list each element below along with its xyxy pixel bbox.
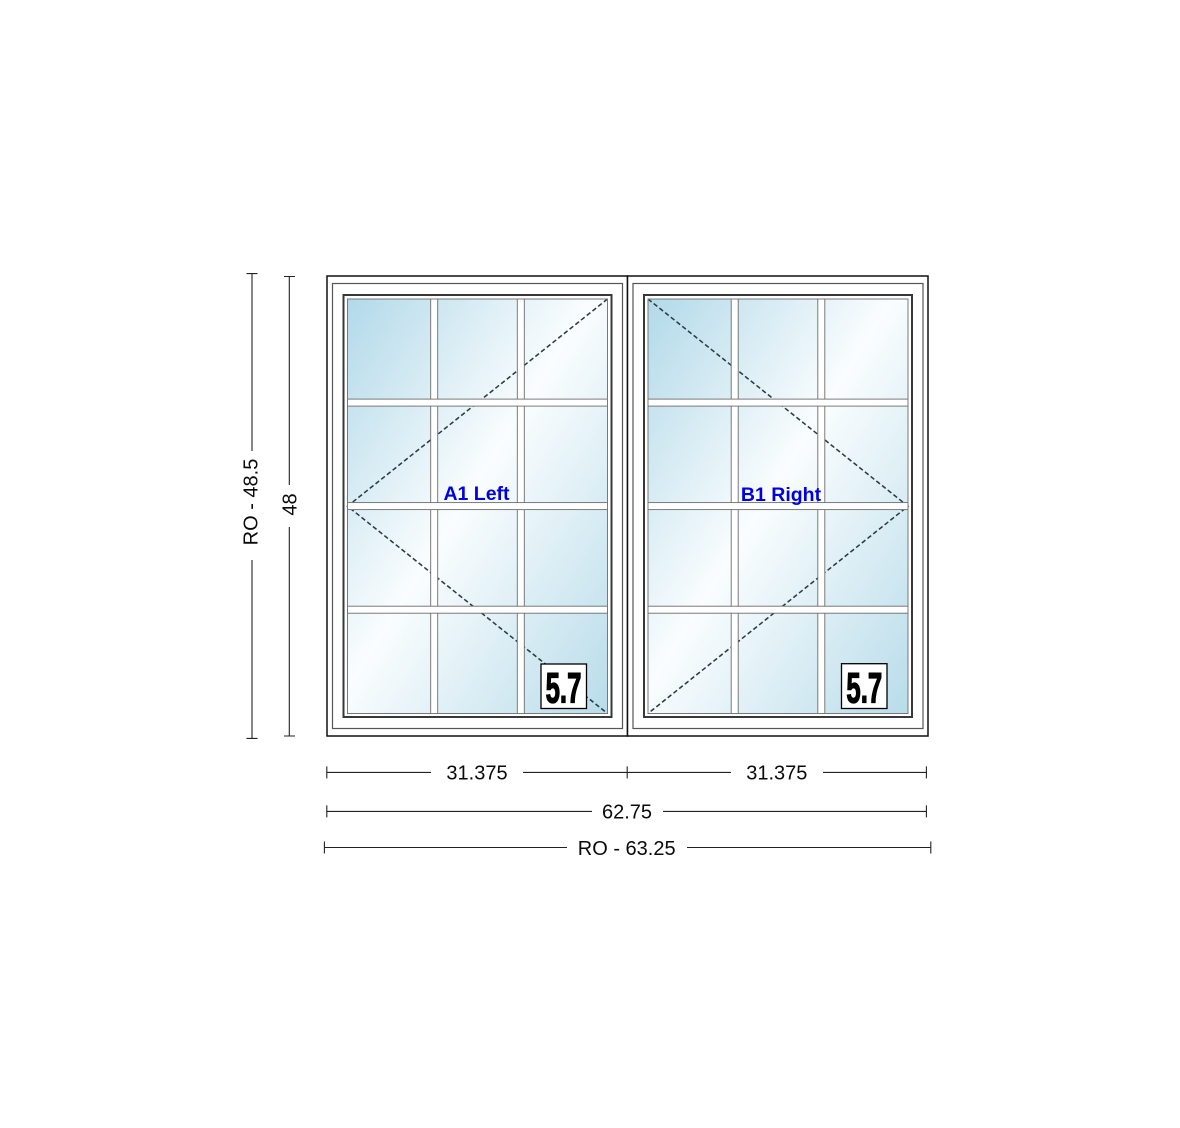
svg-text:31.375: 31.375 <box>446 763 507 785</box>
svg-text:A1 Left: A1 Left <box>443 483 510 505</box>
svg-text:RO - 63.25: RO - 63.25 <box>578 838 676 860</box>
svg-text:31.375: 31.375 <box>746 763 807 785</box>
svg-text:B1 Right: B1 Right <box>741 484 822 506</box>
svg-text:5.7: 5.7 <box>846 664 882 713</box>
svg-text:5.7: 5.7 <box>546 664 582 713</box>
svg-text:62.75: 62.75 <box>602 802 652 824</box>
svg-text:48: 48 <box>280 493 302 515</box>
svg-text:RO - 48.5: RO - 48.5 <box>241 459 263 546</box>
